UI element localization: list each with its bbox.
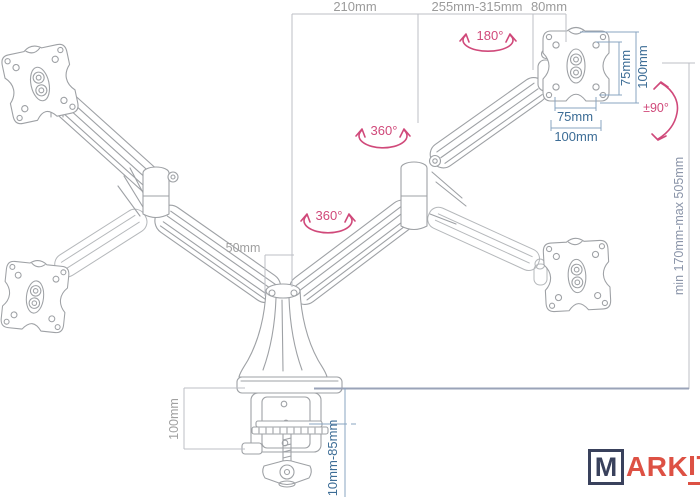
dim-vesa-100h-label: 100mm [554, 129, 597, 144]
vesa-plate-top-left [0, 39, 80, 125]
angle-upper-rotation: 360° [356, 123, 410, 148]
angle-360-lower-label: 360° [316, 208, 343, 223]
dim-50mm-label: 50mm [226, 241, 261, 255]
dim-vesa-75v-label: 75mm [618, 50, 633, 86]
dim-210mm-label: 210mm [333, 0, 376, 14]
logo-text-ark: ARK [626, 451, 688, 483]
vesa-plate-bottom-left [0, 257, 70, 333]
dim-height-range-label: min 170mm-max 505mm [672, 157, 686, 295]
angle-tilt: ±90° [643, 82, 677, 140]
angle-360-upper-label: 360° [371, 123, 398, 138]
logo-boxed-m: M [588, 449, 624, 485]
dim-255-315mm-label: 255mm-315mm [431, 0, 522, 14]
ghost-arm-lower-right [424, 204, 547, 285]
dim-80mm-label: 80mm [531, 0, 567, 14]
dim-vesa-horizontal: 75mm 100mm [551, 97, 601, 144]
diagram-canvas: 210mm 255mm-315mm 80mm 50mm 75mm 100mm 7… [0, 0, 700, 497]
brand-logo: M ARK IT [588, 447, 700, 487]
logo-text-it: IT [688, 450, 700, 485]
angle-lower-rotation: 360° [301, 208, 355, 233]
angle-180-label: 180° [477, 28, 504, 43]
vesa-plate-top-right [543, 28, 609, 102]
monitor-arm-spec-diagram: 210mm 255mm-315mm 80mm 50mm 75mm 100mm 7… [0, 0, 700, 497]
angle-90-label: ±90° [643, 101, 669, 115]
arm-upper-right [425, 73, 551, 173]
dim-vesa-75h-label: 75mm [557, 109, 593, 124]
dim-clamp-height: 100mm [167, 388, 245, 449]
dim-vesa-100v-label: 100mm [635, 45, 650, 88]
dim-top-chain: 210mm 255mm-315mm 80mm [292, 0, 567, 287]
dim-desk-thickness-label: 10mm-85mm [325, 420, 340, 497]
vesa-plate-bottom-right [543, 237, 611, 312]
dim-clamp-100mm-label: 100mm [167, 398, 181, 440]
angle-head-swivel: 180° [460, 28, 516, 51]
